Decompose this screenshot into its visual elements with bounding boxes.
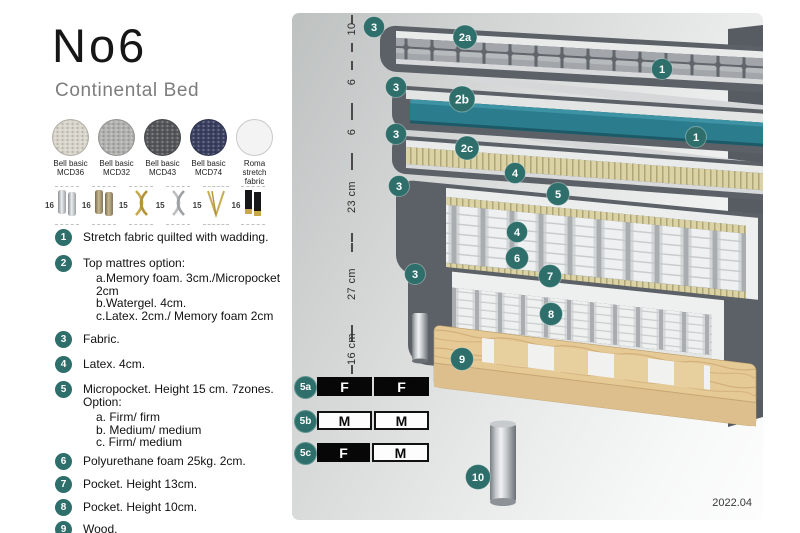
fabric-swatch-circle — [144, 119, 181, 156]
feature-number-badge: 3 — [55, 331, 72, 348]
firmness-cell: M — [317, 411, 372, 430]
feature-text: Wood. — [83, 523, 117, 533]
fabric-swatches: Bell basicMCD36 Bell basicMCD32 Bell bas… — [49, 119, 276, 186]
feature-text: Top mattres option: a.Memory foam. 3cm./… — [83, 257, 297, 322]
feature-text: Pocket. Height 13cm. — [83, 478, 197, 493]
svg-text:4: 4 — [512, 168, 519, 180]
svg-text:3: 3 — [393, 129, 399, 141]
badge-3: 3 — [386, 77, 407, 98]
badge-9: 9 — [451, 348, 474, 371]
firmness-row-5a: F F — [317, 377, 429, 396]
badge-1: 1 — [686, 127, 707, 148]
leg-height-label: 16 — [232, 201, 241, 210]
badge-5: 5 — [547, 183, 570, 206]
feature-number-badge: 5 — [55, 381, 72, 398]
fabric-swatch-label: Bell basicMCD74 — [191, 159, 225, 177]
dimension-label: 23 cm — [346, 181, 358, 213]
firmness-row-5c: F M — [317, 443, 429, 462]
leg-option: 16 — [82, 186, 116, 225]
fabric-swatch-circle — [52, 119, 89, 156]
leg-option: 15 — [119, 186, 153, 225]
list-item: 9 Wood. — [55, 523, 297, 533]
dimension-label: 16 cm — [346, 333, 358, 365]
feature-number-badge: 2 — [55, 255, 72, 272]
fabric-swatch-circle — [98, 119, 135, 156]
list-item: 6 Polyurethane foam 25kg. 2cm. — [55, 455, 297, 470]
feature-number-badge: 6 — [55, 453, 72, 470]
badge-3: 3 — [389, 176, 410, 197]
fabric-swatch: Bell basicMCD32 — [95, 119, 138, 186]
fabric-swatch: Bell basicMCD43 — [141, 119, 184, 186]
list-item: 5 Micropocket. Height 15 cm. 7zones. Opt… — [55, 383, 297, 449]
feature-text: Pocket. Height 10cm. — [83, 501, 197, 516]
fabric-swatch: Romastretch fabric — [233, 119, 276, 186]
fabric-swatch-label: Bell basicMCD36 — [53, 159, 87, 177]
leg-option: 16 — [232, 186, 266, 225]
firmness-row-5b: M M — [317, 411, 429, 430]
leg-height-label: 15 — [156, 201, 165, 210]
feature-list: 1 Stretch fabric quilted with wadding. 2… — [55, 231, 297, 533]
list-item: 4 Latex. 4cm. — [55, 358, 297, 373]
list-item: 7 Pocket. Height 13cm. — [55, 478, 297, 493]
badge-2c: 2c — [455, 136, 479, 160]
leg-height-label: 15 — [193, 201, 202, 210]
leg-option: 16 — [45, 186, 79, 225]
svg-text:7: 7 — [547, 271, 553, 283]
list-item: 2 Top mattres option: a.Memory foam. 3cm… — [55, 257, 297, 322]
product-subtitle: Continental Bed — [55, 80, 199, 102]
fabric-swatch-label: Bell basicMCD32 — [99, 159, 133, 177]
badge-4: 4 — [507, 222, 528, 243]
badge-3: 3 — [386, 124, 407, 145]
svg-text:5: 5 — [555, 189, 561, 201]
badge-2b: 2b — [449, 86, 475, 112]
feature-text: Stretch fabric quilted with wadding. — [83, 231, 268, 246]
list-item: 1 Stretch fabric quilted with wadding. — [55, 231, 297, 246]
firmness-cell: F — [317, 377, 372, 396]
metal-leg-back — [412, 313, 428, 364]
badge-2a: 2a — [453, 25, 477, 49]
version-label: 2022.04 — [712, 497, 752, 509]
badge-3: 3 — [364, 17, 385, 38]
feature-number-badge: 4 — [55, 356, 72, 373]
fabric-swatch-circle — [236, 119, 273, 156]
leg-height-label: 16 — [82, 201, 91, 210]
dimension-label: 10 — [346, 22, 358, 35]
dimension-label: 27 cm — [346, 268, 358, 300]
svg-text:9: 9 — [459, 354, 465, 366]
list-item: 3 Fabric. — [55, 333, 297, 348]
firmness-cell: M — [374, 411, 429, 430]
fabric-swatch-circle — [190, 119, 227, 156]
fabric-swatch: Bell basicMCD36 — [49, 119, 92, 186]
feature-number-badge: 1 — [55, 229, 72, 246]
badge-10: 10 — [466, 465, 491, 490]
svg-text:1: 1 — [693, 132, 699, 144]
badge-5b: 5b — [294, 410, 317, 433]
feature-number-badge: 9 — [55, 521, 72, 533]
straight-black-gold-leg-icon — [241, 186, 265, 225]
metal-leg-front — [490, 421, 516, 507]
leg-options: 16 16 15 15 15 — [45, 186, 265, 225]
feature-text: Micropocket. Height 15 cm. 7zones. Optio… — [83, 383, 297, 449]
firmness-cell: F — [317, 443, 370, 462]
leg-option: 15 — [193, 186, 229, 225]
cylinder-bronze-leg-icon — [92, 186, 116, 225]
firmness-cell: M — [372, 443, 429, 462]
svg-text:2c: 2c — [461, 143, 473, 155]
diagram-panel: 3 2a 1 3 2b 1 3 2c 3 4 5 4 6 7 3 8 9 10 — [292, 13, 763, 520]
leg-height-label: 15 — [119, 201, 128, 210]
fabric-swatch-label: Bell basicMCD43 — [145, 159, 179, 177]
hairpin-gold-leg-icon — [203, 186, 229, 225]
feature-number-badge: 7 — [55, 476, 72, 493]
cylinder-silver-leg-icon — [55, 186, 79, 225]
dimension-label: 6 — [346, 129, 358, 136]
svg-text:2a: 2a — [459, 32, 472, 44]
svg-text:10: 10 — [472, 472, 484, 484]
badge-5a: 5a — [294, 376, 317, 399]
badge-1: 1 — [652, 59, 673, 80]
cross-gold-leg-icon — [129, 186, 153, 225]
svg-text:6: 6 — [514, 253, 520, 265]
svg-text:3: 3 — [393, 82, 399, 94]
feature-text: Polyurethane foam 25kg. 2cm. — [83, 455, 246, 470]
cross-silver-leg-icon — [166, 186, 190, 225]
badge-6: 6 — [506, 247, 529, 270]
svg-text:3: 3 — [412, 269, 418, 281]
badge-7: 7 — [539, 265, 562, 288]
svg-text:8: 8 — [548, 309, 554, 321]
badge-8: 8 — [540, 303, 563, 326]
svg-text:2b: 2b — [455, 93, 469, 107]
badge-4: 4 — [505, 163, 526, 184]
firmness-cell: F — [374, 377, 429, 396]
feature-text: Latex. 4cm. — [83, 358, 145, 373]
product-title: No6 — [52, 18, 147, 73]
layer-top-quilted — [380, 25, 763, 93]
product-sheet: No6 Continental Bed Bell basicMCD36 Bell… — [0, 0, 800, 533]
fabric-swatch-label: Romastretch fabric — [233, 159, 276, 186]
svg-text:3: 3 — [396, 181, 402, 193]
fabric-swatch: Bell basicMCD74 — [187, 119, 230, 186]
feature-number-badge: 8 — [55, 499, 72, 516]
list-item: 8 Pocket. Height 10cm. — [55, 501, 297, 516]
badge-3: 3 — [405, 264, 426, 285]
leg-option: 15 — [156, 186, 190, 225]
badge-5c: 5c — [294, 442, 317, 465]
svg-text:1: 1 — [659, 64, 665, 76]
svg-text:3: 3 — [371, 22, 377, 34]
dimension-label: 6 — [346, 79, 358, 86]
feature-text: Fabric. — [83, 333, 120, 348]
svg-text:4: 4 — [514, 227, 521, 239]
leg-height-label: 16 — [45, 201, 54, 210]
